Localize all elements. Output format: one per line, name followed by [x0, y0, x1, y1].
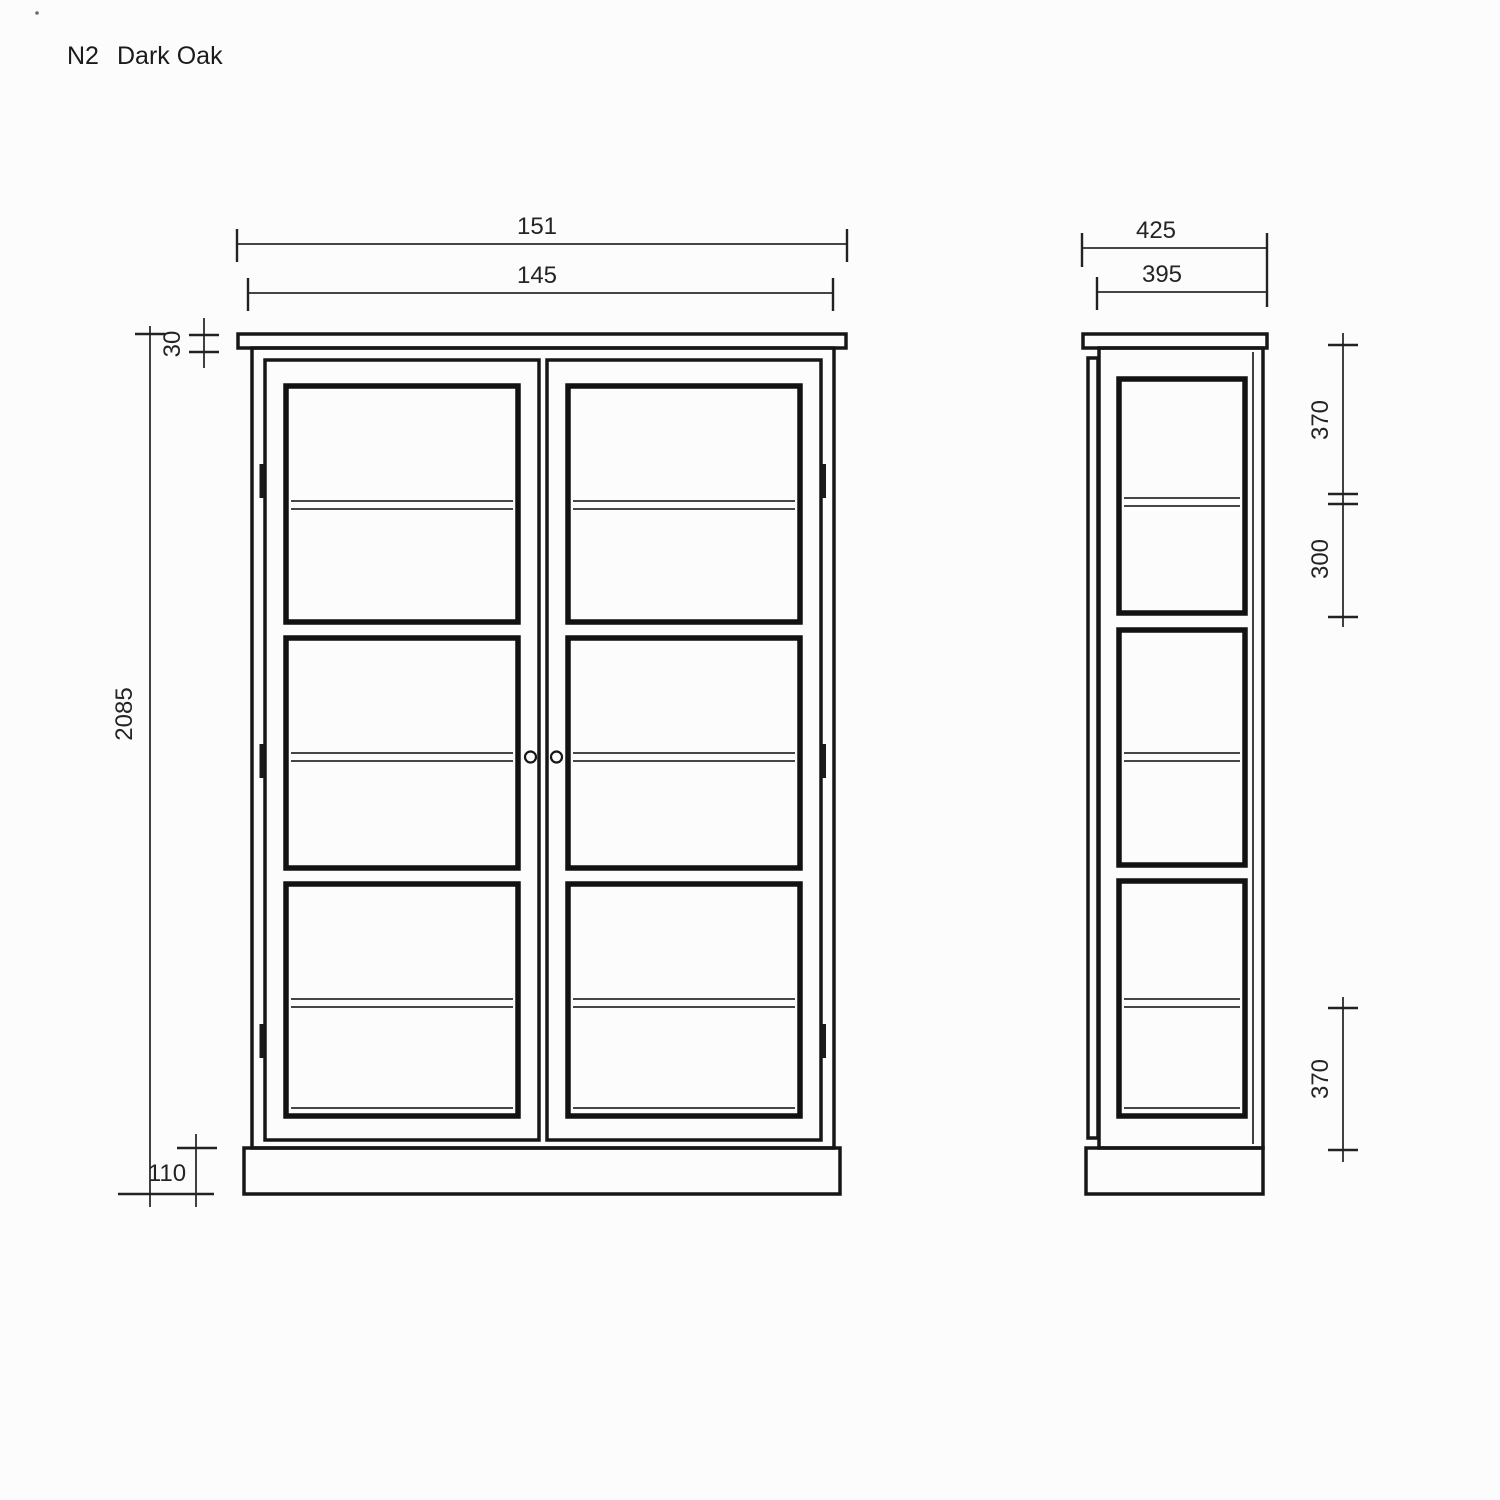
front-view: [238, 334, 846, 1194]
dim-label-carcass-depth: 395: [1142, 261, 1182, 288]
hinge-mark: [260, 744, 265, 778]
front-right-door: [547, 360, 821, 1140]
front-carcass: [252, 348, 834, 1148]
glass-panel: [568, 386, 800, 622]
model-code-label: N2: [67, 42, 99, 70]
dim-label-carcass-width: 145: [517, 262, 557, 289]
cabinet-drawing-svg: N2 Dark Oak: [0, 0, 1500, 1500]
hinge-mark: [260, 1024, 265, 1058]
finish-name-label: Dark Oak: [117, 42, 223, 70]
front-plinth: [244, 1148, 840, 1194]
dim-label-plinth-height: 110: [148, 1160, 186, 1187]
side-dimensions: 425 395 370 300 370: [1082, 217, 1358, 1162]
glass-panel: [286, 884, 518, 1116]
side-door-edge: [1088, 358, 1098, 1138]
technical-drawing-page: N2 Dark Oak: [0, 0, 1500, 1500]
dim-label-top-width: 151: [517, 213, 557, 240]
dim-label-lower-glass: 370: [1307, 1059, 1334, 1099]
dim-label-upper-glass: 370: [1307, 400, 1334, 440]
side-view: [1083, 334, 1267, 1194]
hinge-mark: [822, 464, 827, 498]
glass-panel: [1119, 379, 1245, 613]
front-left-door: [265, 360, 539, 1140]
side-carcass: [1099, 348, 1263, 1148]
door-knob: [525, 752, 536, 763]
stray-dot-artifact: [35, 11, 39, 15]
title-block: N2 Dark Oak: [67, 42, 223, 70]
hinge-mark: [822, 1024, 827, 1058]
side-top-board: [1083, 334, 1267, 348]
dim-label-middle-glass: 300: [1307, 539, 1334, 579]
hinge-mark: [822, 744, 827, 778]
dim-label-top-depth: 425: [1136, 217, 1176, 244]
side-plinth: [1086, 1148, 1263, 1194]
front-dimensions: 151 145 30 2085 110: [111, 213, 847, 1207]
dim-label-total-height: 2085: [111, 687, 138, 740]
door-knob: [551, 752, 562, 763]
glass-panel: [568, 884, 800, 1116]
hinge-mark: [260, 464, 265, 498]
front-top-board: [238, 334, 846, 348]
glass-panel: [286, 386, 518, 622]
glass-panel: [1119, 630, 1245, 865]
